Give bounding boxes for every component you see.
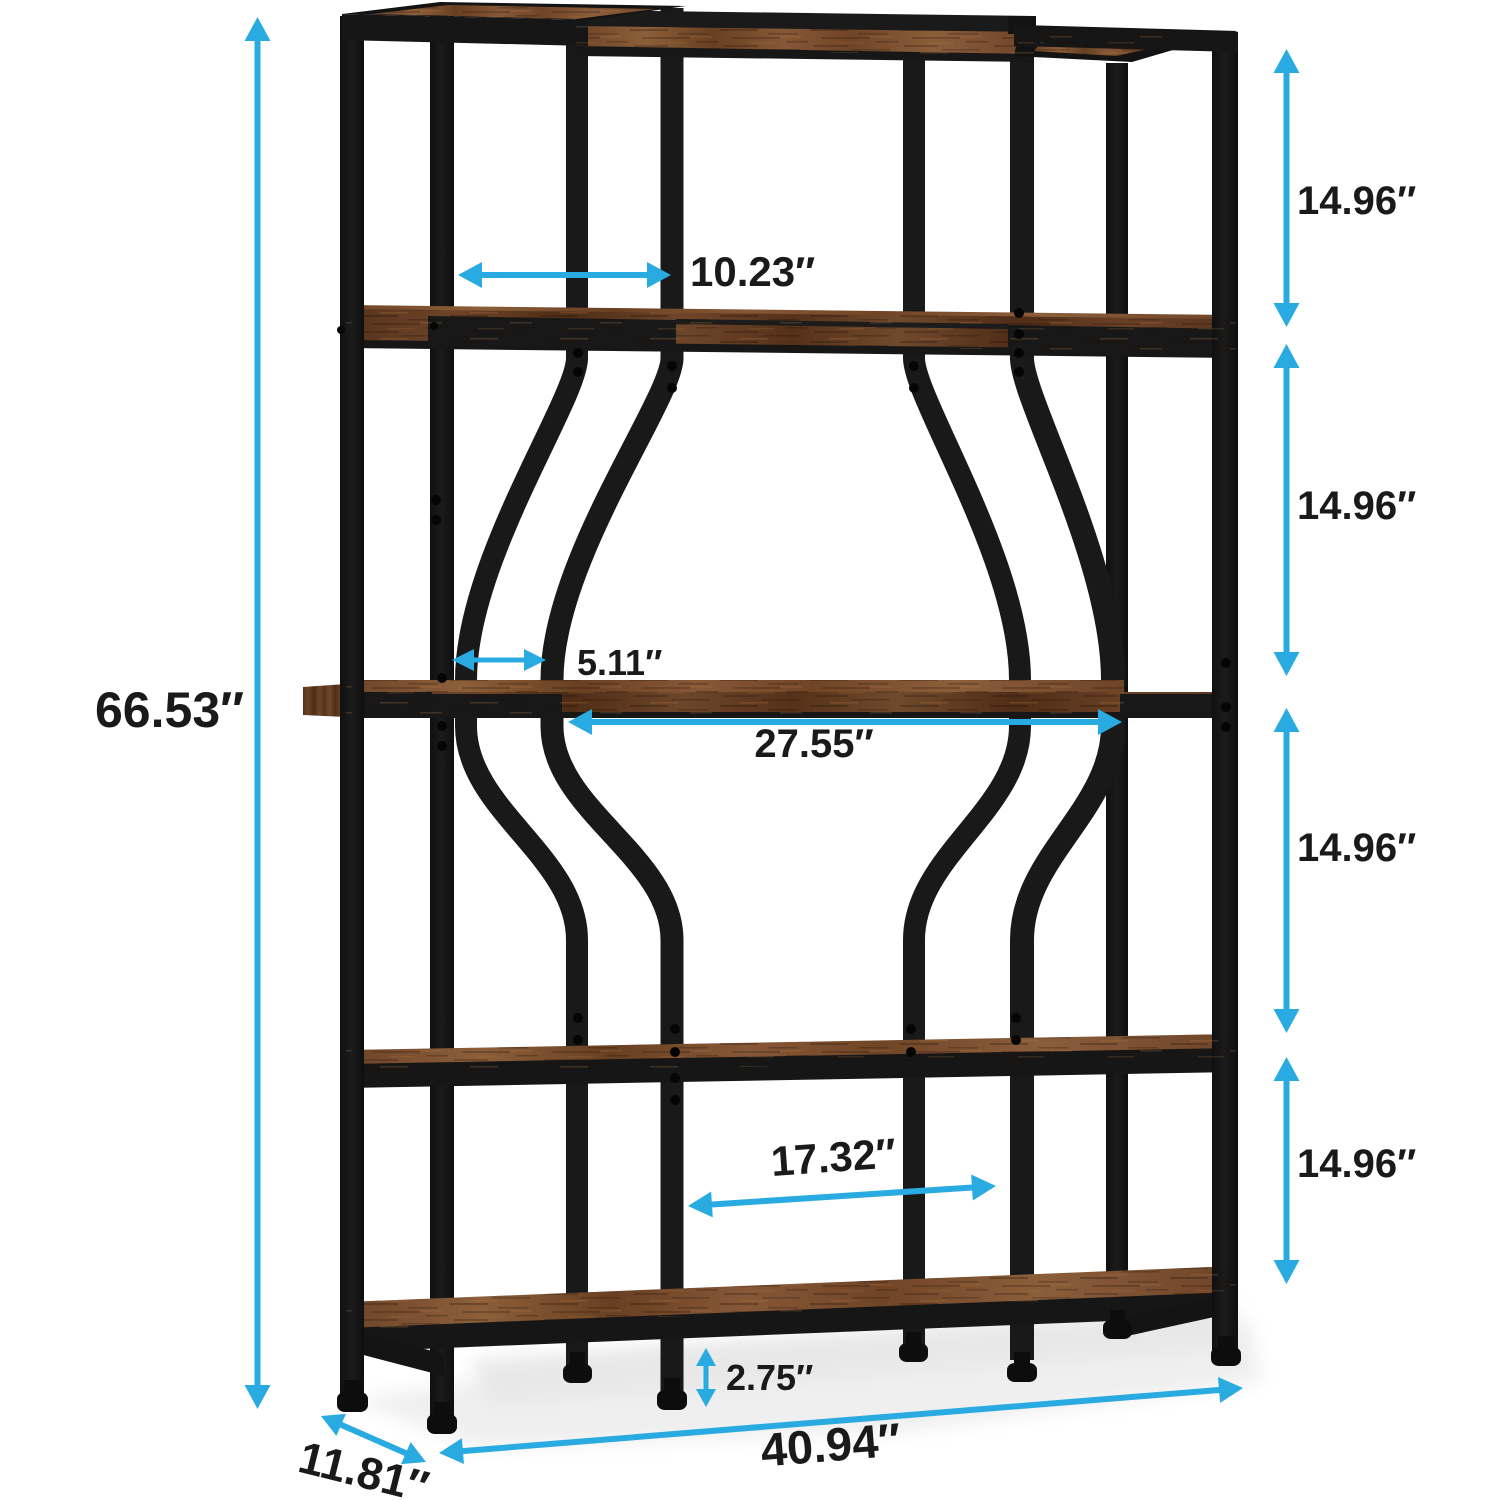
svg-text:14.96″: 14.96″ <box>1297 484 1416 528</box>
svg-text:17.32″: 17.32″ <box>769 1129 897 1185</box>
svg-text:10.23″: 10.23″ <box>690 248 815 295</box>
svg-text:2.75″: 2.75″ <box>726 1357 813 1398</box>
svg-text:14.96″: 14.96″ <box>1297 179 1416 223</box>
svg-text:14.96″: 14.96″ <box>1297 1142 1416 1186</box>
svg-text:5.11″: 5.11″ <box>577 642 662 683</box>
svg-text:27.55″: 27.55″ <box>754 722 873 766</box>
svg-text:66.53″: 66.53″ <box>95 682 244 738</box>
svg-text:14.96″: 14.96″ <box>1297 826 1416 870</box>
svg-text:40.94″: 40.94″ <box>759 1413 903 1477</box>
